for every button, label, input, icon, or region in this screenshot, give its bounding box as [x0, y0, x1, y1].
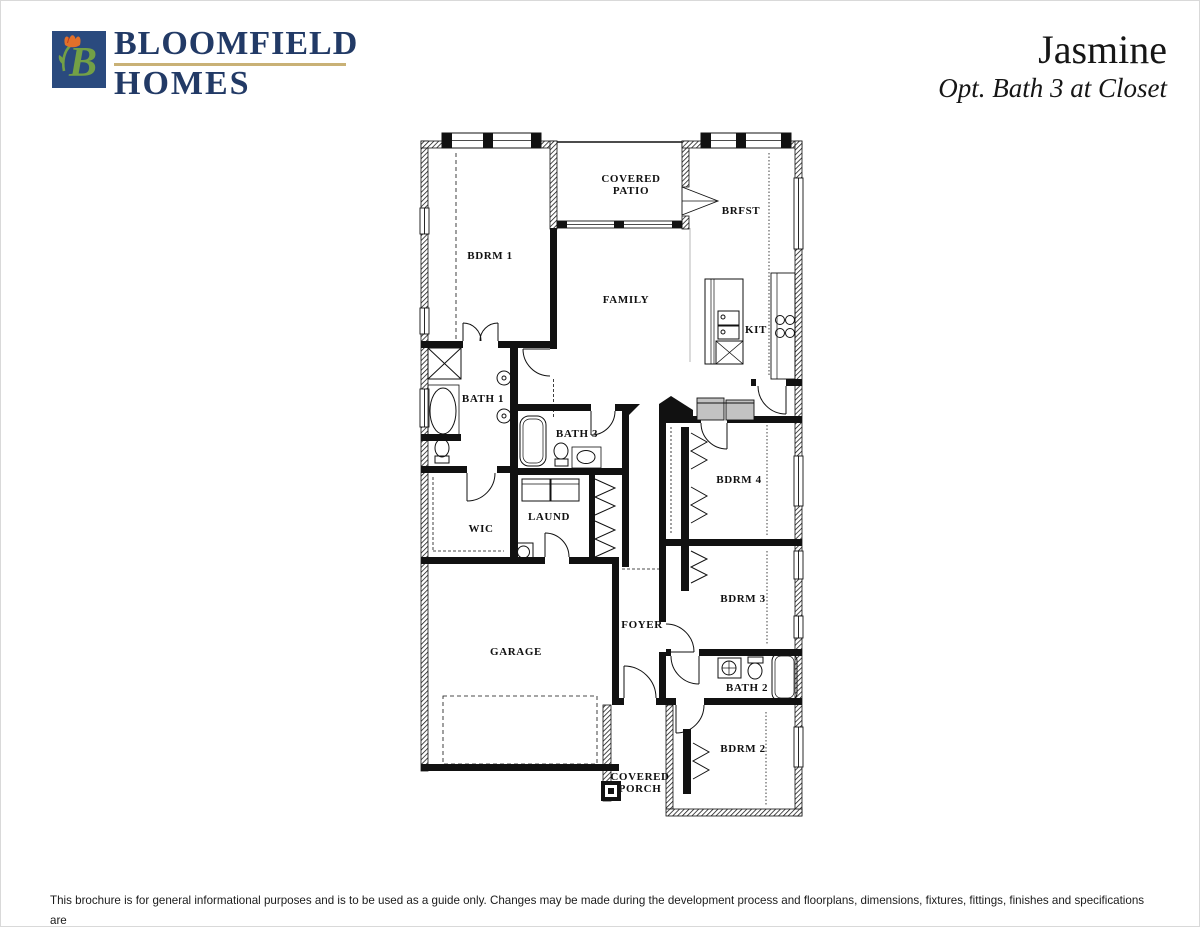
tub-icon — [430, 388, 456, 434]
plan-title-block: Jasmine Opt. Bath 3 at Closet — [938, 29, 1167, 104]
room-label-family: FAMILY — [603, 294, 649, 306]
bloomfield-logo: B — [52, 31, 106, 88]
floor-plan: BDRM 1 COVERED PATIO BRFST FAMILY KIT BA… — [409, 127, 809, 827]
brand-line1: BLOOMFIELD — [114, 27, 358, 61]
sink-icon — [497, 371, 511, 385]
room-label-laund: LAUND — [528, 511, 570, 523]
brochure-page: B BLOOMFIELD HOMES Jasmine Opt. Bath 3 a… — [0, 0, 1200, 927]
dryer-icon — [551, 479, 579, 501]
room-label-bdrm3: BDRM 3 — [720, 593, 765, 605]
disclaimer-line1: This brochure is for general information… — [50, 891, 1154, 927]
bay-windows — [442, 133, 791, 148]
tulip-b-logo-icon: B — [52, 31, 106, 88]
brand-name: BLOOMFIELD HOMES — [114, 27, 358, 101]
tub-icon — [520, 416, 546, 466]
room-label-bdrm2: BDRM 2 — [720, 743, 765, 755]
sink-icon — [577, 451, 595, 464]
brand-line2: HOMES — [114, 67, 358, 101]
room-label-bath2: BATH 2 — [726, 682, 768, 694]
plan-option: Opt. Bath 3 at Closet — [938, 73, 1167, 104]
room-label-brfst: BRFST — [722, 205, 761, 217]
room-label-covered-porch-2: PORCH — [619, 783, 662, 795]
counter-icon — [771, 273, 795, 379]
disclaimer: This brochure is for general information… — [50, 851, 1154, 927]
plan-name: Jasmine — [938, 29, 1167, 71]
toilet-icon — [748, 657, 763, 663]
bath3-fixtures — [520, 416, 601, 468]
room-label-garage: GARAGE — [490, 646, 542, 658]
room-label-bdrm1: BDRM 1 — [467, 250, 512, 262]
room-label-covered-patio-1: COVERED — [601, 173, 660, 185]
tub-icon — [772, 653, 797, 701]
room-label-covered-porch-1: COVERED — [610, 771, 669, 783]
room-label-wic: WIC — [468, 523, 493, 535]
room-label-bath1: BATH 1 — [462, 393, 504, 405]
toilet-icon — [435, 439, 449, 457]
toilet-icon — [554, 443, 568, 459]
room-label-kit: KIT — [745, 324, 767, 336]
room-label-covered-patio-2: PATIO — [613, 185, 649, 197]
room-label-bath3: BATH 3 — [556, 428, 598, 440]
bath1-fixtures — [428, 348, 511, 463]
mud-bench — [697, 398, 754, 420]
room-label-foyer: FOYER — [621, 619, 663, 631]
sink-icon — [497, 409, 511, 423]
room-label-bdrm4: BDRM 4 — [716, 474, 761, 486]
interior-walls — [421, 228, 802, 794]
washer-icon — [522, 479, 550, 501]
